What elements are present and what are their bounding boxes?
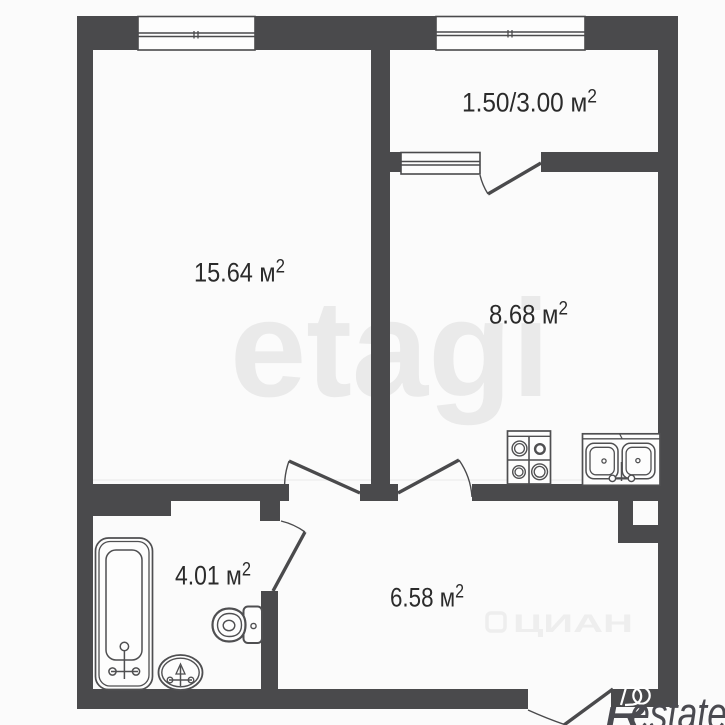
svg-text:estate: estate xyxy=(630,688,725,725)
svg-text:8.68 м2: 8.68 м2 xyxy=(489,299,568,330)
svg-text:ЦИАН: ЦИАН xyxy=(513,610,633,638)
svg-text:15.64 м2: 15.64 м2 xyxy=(194,257,285,288)
svg-text:6.58 м2: 6.58 м2 xyxy=(390,582,464,613)
svg-text:4.01 м2: 4.01 м2 xyxy=(175,560,251,591)
svg-text:1.50/3.00 м2: 1.50/3.00 м2 xyxy=(462,87,597,118)
